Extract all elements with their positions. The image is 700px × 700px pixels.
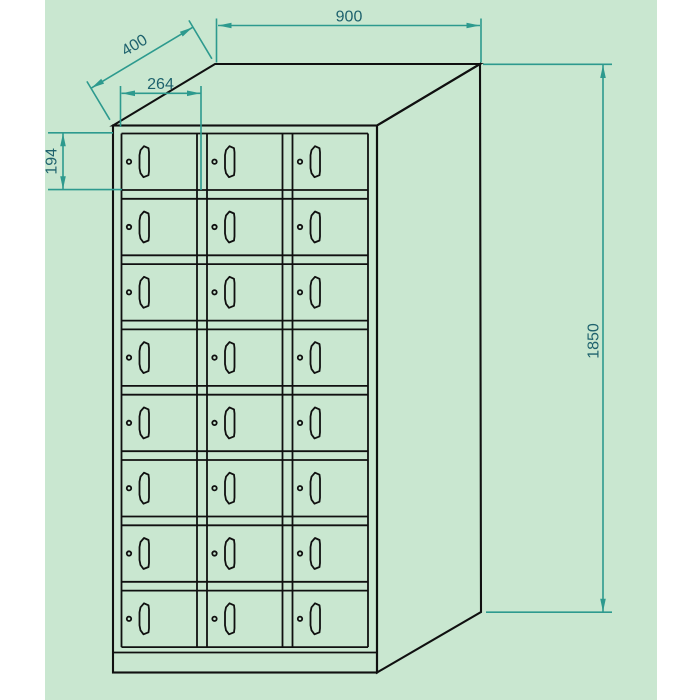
dim-label-overall-width: 900: [336, 9, 363, 26]
dim-label-compartment-height: 194: [44, 148, 61, 175]
dim-label-compartment-width: 264: [147, 76, 174, 93]
drawing-page: 900 400 264 194: [0, 0, 700, 700]
technical-drawing-canvas: 900 400 264 194: [0, 0, 700, 700]
dim-label-overall-height: 1850: [586, 323, 603, 359]
drawing-sheet-background: [45, 0, 657, 700]
